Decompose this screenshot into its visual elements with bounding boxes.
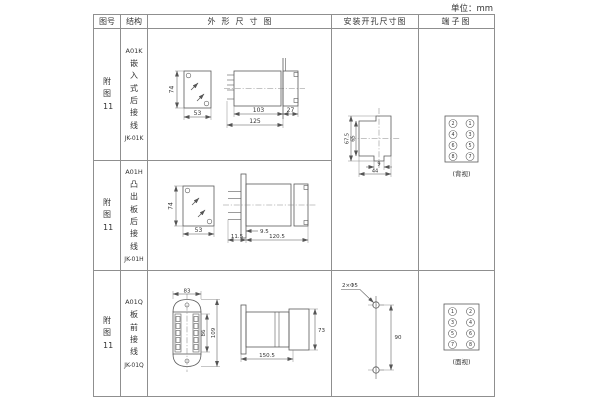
type-code: JK-01Q bbox=[124, 362, 144, 369]
figure-no-cell-a01h: 附图11 bbox=[94, 161, 121, 271]
header-mounting-hole-dims: 安装开孔尺寸图 bbox=[332, 15, 419, 29]
outline-drawing-cell-a01q: 83 86 109 73 bbox=[148, 271, 332, 396]
outline-drawing-a01h: 74 53 9.5 bbox=[148, 161, 331, 270]
drill-drawing: 90 2×Φ5 bbox=[332, 272, 418, 396]
dim-height-label: 74 bbox=[169, 86, 176, 94]
terminal-number: 8 bbox=[451, 154, 454, 160]
mounting-hole-icon bbox=[204, 101, 209, 106]
model-label: A01K bbox=[126, 47, 143, 55]
dim-outer-height-label: 109 bbox=[211, 327, 217, 338]
header-terminal-diagram: 端子图 bbox=[419, 15, 494, 29]
drill-callout-label: 2×Φ5 bbox=[342, 283, 358, 289]
screw-arrow-icon bbox=[191, 83, 198, 90]
drill-drawing-cell: 90 2×Φ5 bbox=[332, 271, 419, 396]
terminal-number: 6 bbox=[451, 143, 454, 149]
structure-cell-a01k: A01K 嵌入式后接线 JK-01K bbox=[121, 29, 148, 161]
structure-cell-a01h: A01H 凸出板后接线 JK-01H bbox=[121, 161, 148, 271]
dim-width-label: 53 bbox=[195, 227, 203, 234]
dim-cutout-inner-label: 65 bbox=[351, 135, 357, 141]
dim-spacing-label: 90 bbox=[395, 335, 402, 341]
terminal-number: 5 bbox=[468, 143, 471, 149]
header-outline-dims: 外形尺寸图 bbox=[148, 15, 332, 29]
outline-drawing-a01k: 74 53 103 bbox=[148, 29, 331, 160]
terminal-rear-cell: 2 4 6 8 1 3 5 7 (背视) bbox=[419, 29, 494, 271]
terminal-number: 4 bbox=[451, 132, 454, 138]
terminal-number: 1 bbox=[468, 121, 471, 127]
dim-total-label: 125 bbox=[249, 118, 261, 125]
header-figure-no: 图号 bbox=[94, 15, 121, 29]
terminal-number: 3 bbox=[468, 132, 471, 138]
mounting-hole-icon bbox=[185, 188, 190, 193]
structure-cell-a01q: A01Q 板前接线 JK-01Q bbox=[121, 271, 148, 396]
dim-body-label: 103 bbox=[253, 107, 265, 114]
dim-width-label: 53 bbox=[194, 110, 202, 117]
dim-body-label: 120.5 bbox=[269, 234, 285, 240]
terminal-number: 5 bbox=[450, 331, 453, 337]
screw-arrow-icon bbox=[192, 198, 199, 205]
mounting-flange bbox=[241, 305, 246, 354]
type-code: JK-01H bbox=[124, 256, 143, 263]
cutout-drawing: 67.5 65 9 44 bbox=[332, 29, 418, 270]
model-label: A01Q bbox=[125, 298, 143, 306]
unit-label: 单位：mm bbox=[93, 2, 493, 14]
dim-cutout-width-label: 44 bbox=[372, 169, 378, 175]
outline-drawing-a01q: 83 86 109 73 bbox=[148, 272, 331, 396]
structure-desc: 板前接线 bbox=[130, 309, 138, 359]
outline-drawing-cell-a01k: 74 53 103 bbox=[148, 29, 332, 161]
view-label-rear: (背视) bbox=[452, 169, 470, 178]
figure-no-cell-a01q: 附图11 bbox=[94, 271, 121, 396]
terminal-number: 2 bbox=[468, 309, 471, 315]
dim-rear-label: 27 bbox=[287, 107, 295, 114]
cutout-drawing-cell: 67.5 65 9 44 bbox=[332, 29, 419, 271]
dim-notch-label: 9 bbox=[377, 162, 380, 168]
terminal-diagram-rear: 2 4 6 8 1 3 5 7 (背视) bbox=[420, 29, 494, 270]
dim-front-label: 11.5 bbox=[231, 234, 244, 240]
dim-width-label: 83 bbox=[184, 288, 191, 294]
dim-length-label: 150.5 bbox=[259, 353, 275, 359]
structure-desc: 嵌入式后接线 bbox=[130, 58, 138, 132]
terminal-number: 6 bbox=[468, 331, 471, 337]
model-label: A01H bbox=[125, 168, 143, 176]
terminal-front-cell: 1 3 5 7 2 4 6 8 (面视) bbox=[419, 271, 494, 396]
terminal-number: 4 bbox=[468, 320, 471, 326]
terminal-number: 8 bbox=[468, 342, 471, 348]
dim-side-height-label: 73 bbox=[318, 328, 325, 334]
terminal-diagram-front: 1 3 5 7 2 4 6 8 (面视) bbox=[420, 272, 494, 396]
mounting-hole-icon bbox=[207, 219, 212, 224]
header-structure: 结构 bbox=[121, 15, 148, 29]
terminal-number: 1 bbox=[450, 309, 453, 315]
terminal-number: 7 bbox=[450, 342, 453, 348]
dim-height-label: 74 bbox=[168, 202, 175, 210]
figure-no-text: 附图11 bbox=[103, 197, 111, 234]
dimension-table: 图号 结构 外形尺寸图 安装开孔尺寸图 端子图 附图11 A01K 嵌入式后接线… bbox=[93, 14, 495, 397]
terminal-number: 2 bbox=[451, 121, 454, 127]
type-code: JK-01K bbox=[125, 135, 144, 142]
figure-no-text: 附图11 bbox=[103, 76, 111, 113]
screw-arrow-icon bbox=[198, 210, 205, 217]
figure-no-cell-a01k: 附图11 bbox=[94, 29, 121, 161]
dim-offset-label: 9.5 bbox=[260, 229, 269, 235]
mounting-hole-icon bbox=[186, 73, 191, 78]
figure-no-text: 附图11 bbox=[103, 315, 111, 352]
dim-inner-height-label: 86 bbox=[201, 329, 207, 336]
terminal-board bbox=[241, 174, 246, 238]
terminal-number: 3 bbox=[450, 320, 453, 326]
outline-drawing-cell-a01h: 74 53 9.5 bbox=[148, 161, 332, 271]
structure-desc: 凸出板后接线 bbox=[130, 179, 138, 253]
screw-arrow-icon bbox=[197, 94, 204, 101]
terminal-number: 7 bbox=[468, 154, 471, 160]
drawing-sheet: 单位：mm 图号 结构 外形尺寸图 安装开孔尺寸图 端子图 附图11 A01K … bbox=[0, 0, 600, 400]
view-label-front: (面视) bbox=[452, 357, 470, 366]
